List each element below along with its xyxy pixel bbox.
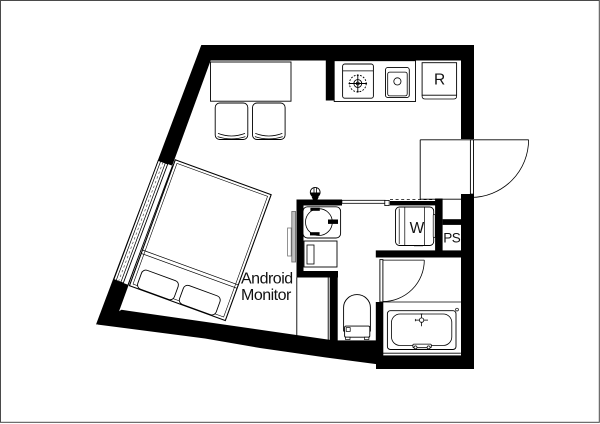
svg-text:Monitor: Monitor xyxy=(241,287,292,304)
svg-text:PS: PS xyxy=(443,231,461,246)
svg-text:Android: Android xyxy=(241,270,293,287)
svg-text:W: W xyxy=(410,220,425,237)
svg-text:R: R xyxy=(434,72,445,89)
